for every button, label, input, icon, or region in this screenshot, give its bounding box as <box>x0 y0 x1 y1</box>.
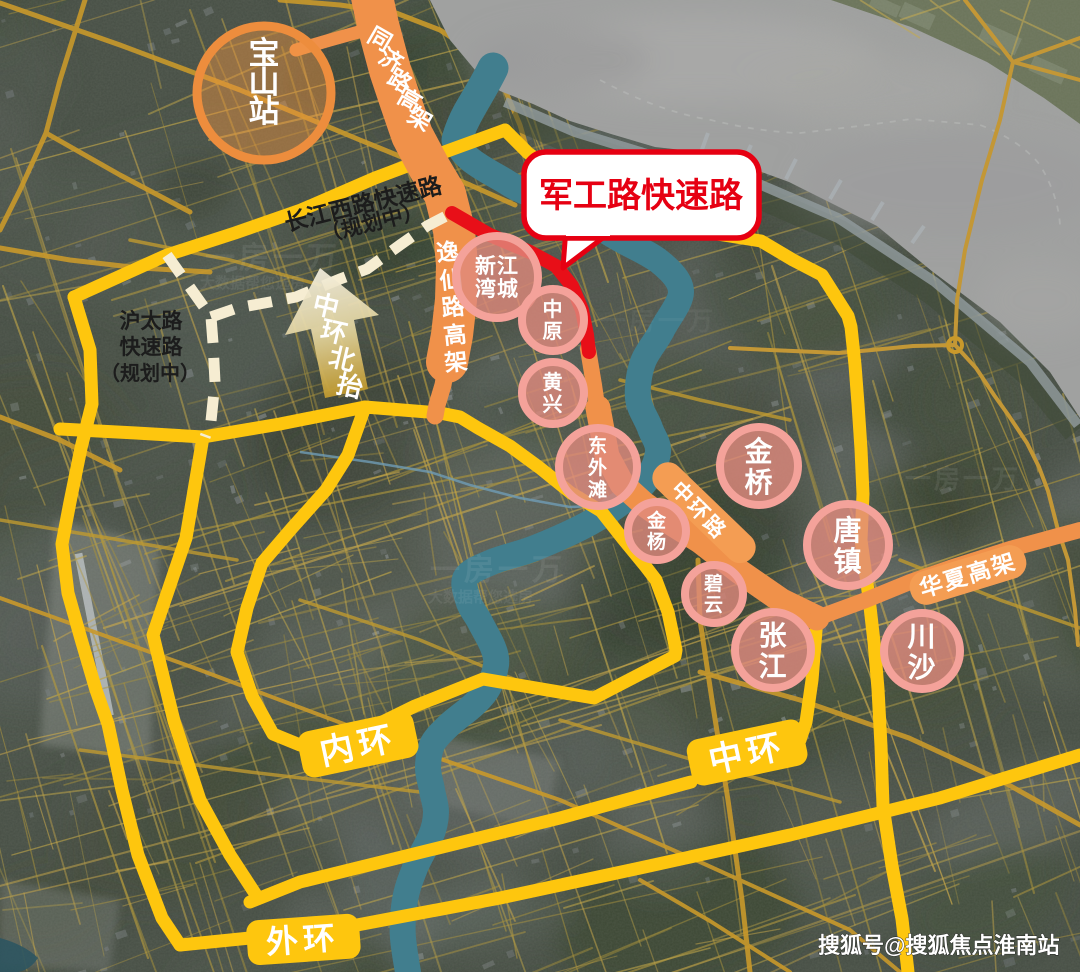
svg-text:一房一万: 一房一万 <box>205 242 341 275</box>
svg-text:一房一万: 一房一万 <box>430 554 566 587</box>
svg-text:唐: 唐 <box>833 514 862 546</box>
svg-text:架: 架 <box>443 348 469 376</box>
svg-text:一房一万: 一房一万 <box>905 464 1021 494</box>
svg-text:高: 高 <box>442 321 468 349</box>
svg-text:川: 川 <box>907 621 936 652</box>
svg-text:碧: 碧 <box>703 572 724 595</box>
svg-text:桥: 桥 <box>744 467 773 498</box>
svg-text:外环: 外环 <box>265 919 341 960</box>
svg-text:兴: 兴 <box>543 393 564 416</box>
svg-text:金: 金 <box>743 435 773 467</box>
svg-text:金: 金 <box>646 509 667 532</box>
svg-text:湾城: 湾城 <box>475 277 519 301</box>
svg-text:黄: 黄 <box>543 370 564 394</box>
svg-text:原: 原 <box>543 321 564 343</box>
svg-text:大数据帮您选房: 大数据帮您选房 <box>428 588 533 606</box>
svg-text:滩: 滩 <box>588 478 608 501</box>
svg-text:站: 站 <box>249 94 280 129</box>
svg-text:云: 云 <box>704 595 724 616</box>
svg-text:一房一万: 一房一万 <box>600 306 716 336</box>
svg-text:东: 东 <box>588 434 608 457</box>
svg-text:快速路: 快速路 <box>120 335 184 359</box>
svg-text:大数据帮您选房: 大数据帮您选房 <box>200 274 305 292</box>
svg-text:沪太路: 沪太路 <box>120 309 184 333</box>
svg-text:搜狐号@搜狐焦点淮南站: 搜狐号@搜狐焦点淮南站 <box>818 933 1059 958</box>
svg-text:沙: 沙 <box>907 652 936 683</box>
svg-text:江: 江 <box>758 651 787 682</box>
svg-text:中: 中 <box>543 297 564 321</box>
svg-text:（规划中）: （规划中） <box>100 361 200 385</box>
svg-text:新江: 新江 <box>475 254 519 278</box>
svg-text:杨: 杨 <box>647 530 667 553</box>
svg-text:镇: 镇 <box>833 546 862 577</box>
svg-text:军工路快速路: 军工路快速路 <box>539 177 744 215</box>
svg-text:外: 外 <box>588 456 608 479</box>
svg-text:张: 张 <box>758 620 787 651</box>
